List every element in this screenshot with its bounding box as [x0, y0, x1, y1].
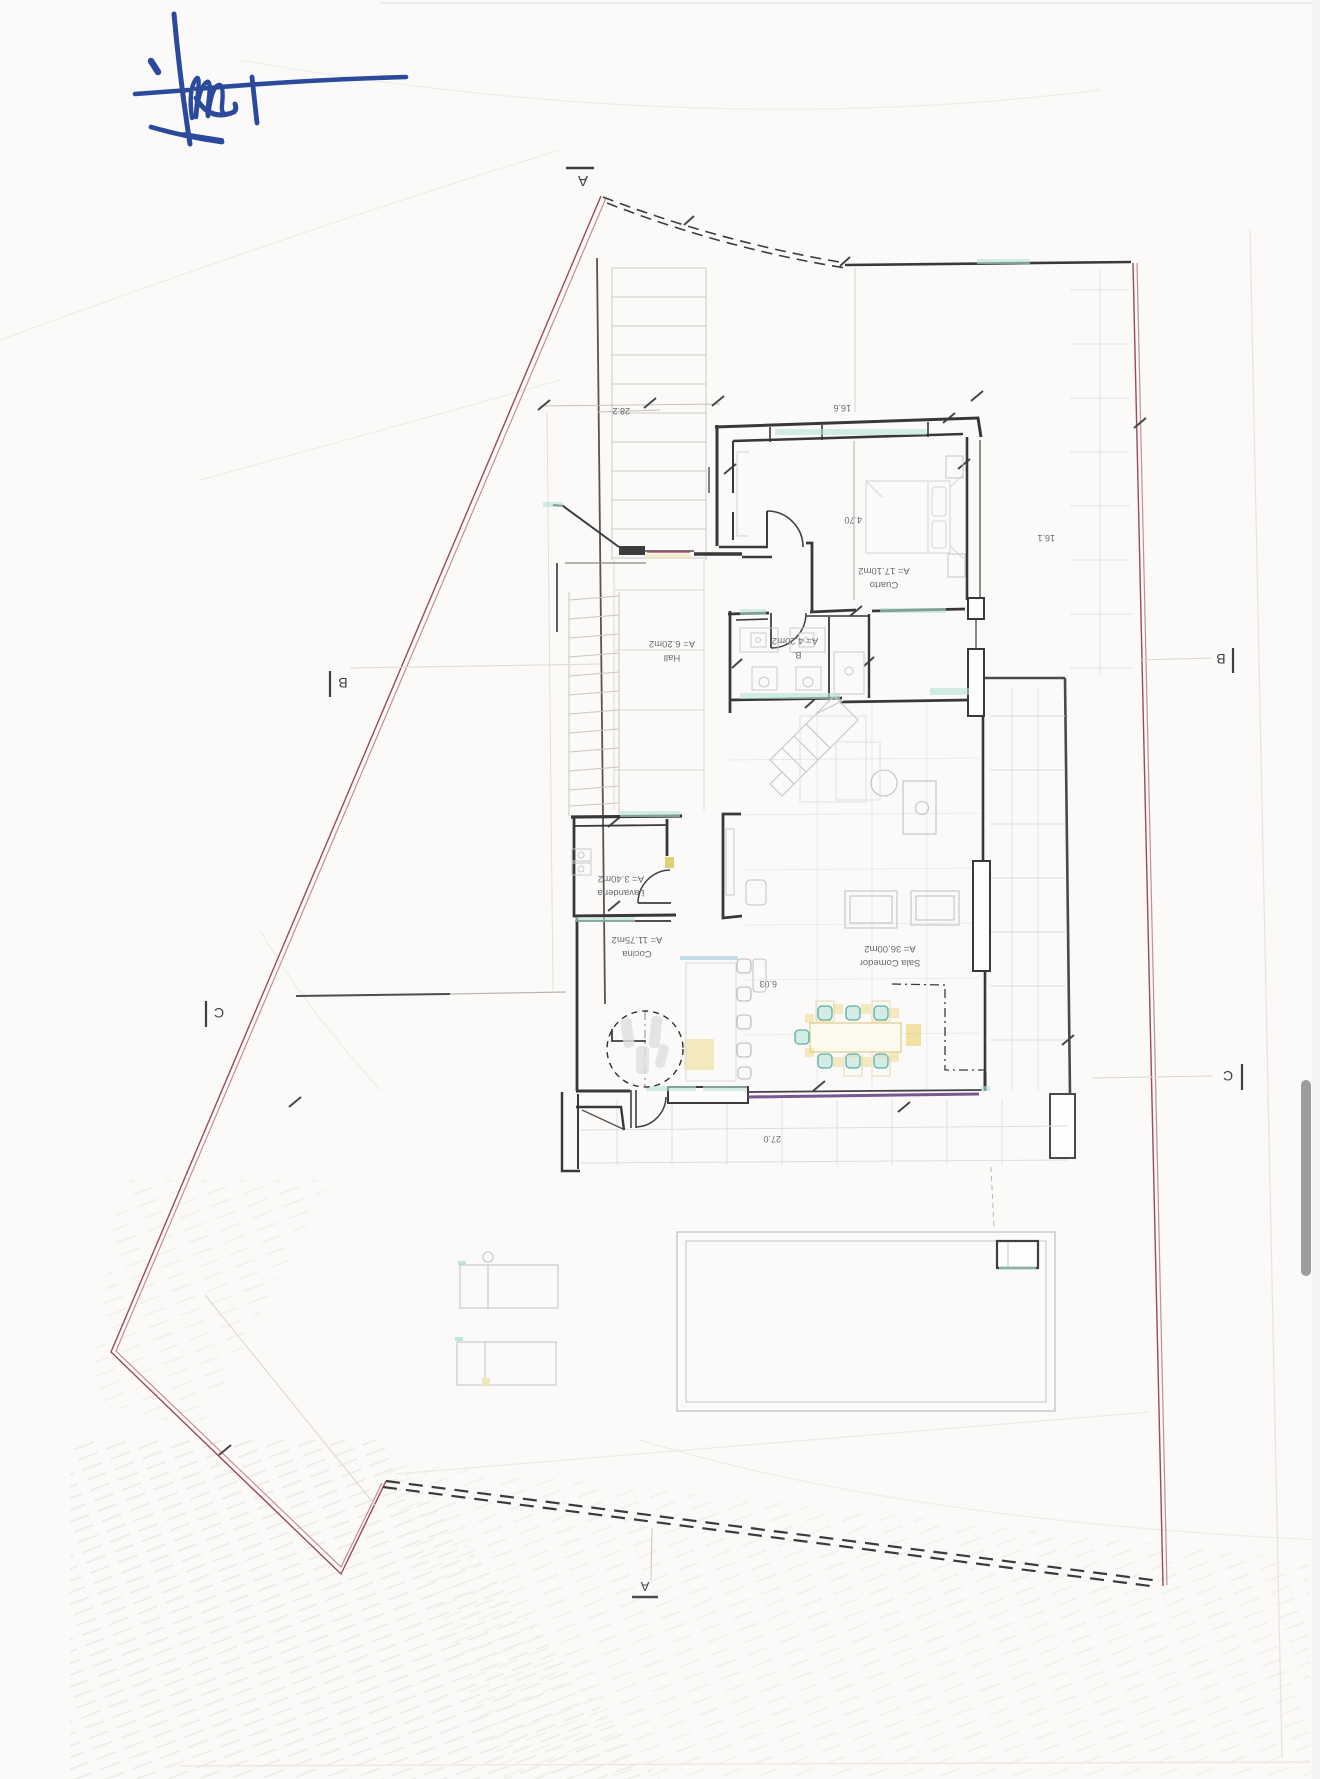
svg-text:Hall: Hall: [664, 652, 680, 663]
svg-text:16.1: 16.1: [1037, 533, 1055, 543]
svg-text:A= 36.00m2: A= 36.00m2: [864, 943, 916, 954]
svg-text:A: A: [578, 172, 588, 189]
svg-text:Sala Comedor: Sala Comedor: [860, 957, 921, 968]
svg-text:27.0: 27.0: [763, 1134, 781, 1144]
svg-text:A= 4.20m2: A= 4.20m2: [772, 635, 818, 646]
svg-text:A= 17.10m2: A= 17.10m2: [858, 565, 910, 576]
svg-text:B: B: [1216, 651, 1225, 667]
svg-text:Lavanderia: Lavanderia: [597, 887, 645, 898]
svg-text:Cocina: Cocina: [622, 948, 652, 959]
svg-text:16.6: 16.6: [833, 403, 851, 413]
svg-text:A: A: [640, 1579, 649, 1594]
svg-text:C: C: [1223, 1068, 1233, 1084]
svg-text:A= 3.40m2: A= 3.40m2: [598, 873, 644, 884]
svg-text:Cuarto: Cuarto: [870, 579, 899, 590]
svg-text:4.70: 4.70: [844, 515, 862, 525]
svg-text:C: C: [214, 1005, 224, 1021]
svg-text:B: B: [338, 675, 347, 691]
svg-text:6.03: 6.03: [759, 979, 777, 989]
svg-text:28.2: 28.2: [612, 406, 630, 416]
svg-text:A= 11.75m2: A= 11.75m2: [612, 934, 663, 945]
svg-text:B.: B.: [793, 649, 802, 660]
svg-text:A= 6.20m2: A= 6.20m2: [649, 638, 695, 649]
